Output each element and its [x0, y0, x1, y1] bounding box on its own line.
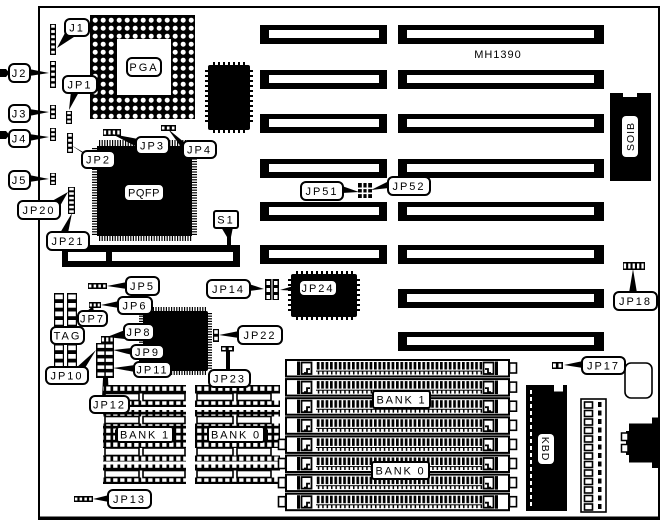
svg-text:JP20: JP20 — [22, 205, 55, 217]
svg-text:JP21: JP21 — [51, 236, 84, 248]
svg-text:SOIB: SOIB — [625, 122, 637, 151]
svg-text:PGA: PGA — [129, 62, 158, 74]
svg-text:MH1390: MH1390 — [474, 49, 522, 61]
svg-text:JP22: JP22 — [243, 330, 276, 342]
svg-text:JP52: JP52 — [392, 181, 425, 193]
svg-text:JP24: JP24 — [301, 283, 334, 295]
svg-text:BANK 1: BANK 1 — [120, 430, 170, 442]
svg-text:JP14: JP14 — [212, 284, 245, 296]
svg-text:J1: J1 — [69, 23, 85, 35]
svg-text:S1: S1 — [217, 215, 234, 227]
svg-text:JP8: JP8 — [127, 327, 152, 339]
svg-text:JP6: JP6 — [123, 301, 148, 313]
svg-text:JP51: JP51 — [305, 186, 338, 198]
svg-text:J3: J3 — [12, 109, 28, 121]
svg-text:BANK 0: BANK 0 — [211, 430, 261, 442]
svg-text:BANK 1: BANK 1 — [377, 395, 427, 407]
svg-text:KBD: KBD — [539, 437, 551, 462]
svg-text:JP12: JP12 — [93, 400, 126, 412]
svg-text:J4: J4 — [12, 134, 28, 146]
svg-text:JP5: JP5 — [130, 281, 155, 293]
svg-text:JP13: JP13 — [113, 494, 146, 506]
svg-text:JP2: JP2 — [86, 155, 111, 167]
svg-text:JP3: JP3 — [140, 141, 165, 153]
svg-text:PQFP: PQFP — [128, 188, 160, 200]
svg-text:JP7: JP7 — [80, 314, 105, 326]
svg-text:JP4: JP4 — [187, 145, 212, 157]
svg-text:J2: J2 — [12, 68, 28, 80]
svg-text:BANK 0: BANK 0 — [376, 466, 426, 478]
svg-text:JP17: JP17 — [587, 361, 620, 373]
svg-text:JP18: JP18 — [619, 296, 652, 308]
svg-text:JP1: JP1 — [68, 80, 93, 92]
svg-text:JP9: JP9 — [135, 347, 160, 359]
svg-text:TAG: TAG — [54, 331, 82, 343]
svg-text:JP23: JP23 — [213, 374, 246, 386]
svg-text:J5: J5 — [12, 175, 28, 187]
svg-text:JP10: JP10 — [50, 371, 83, 383]
svg-text:JP11: JP11 — [136, 365, 168, 377]
